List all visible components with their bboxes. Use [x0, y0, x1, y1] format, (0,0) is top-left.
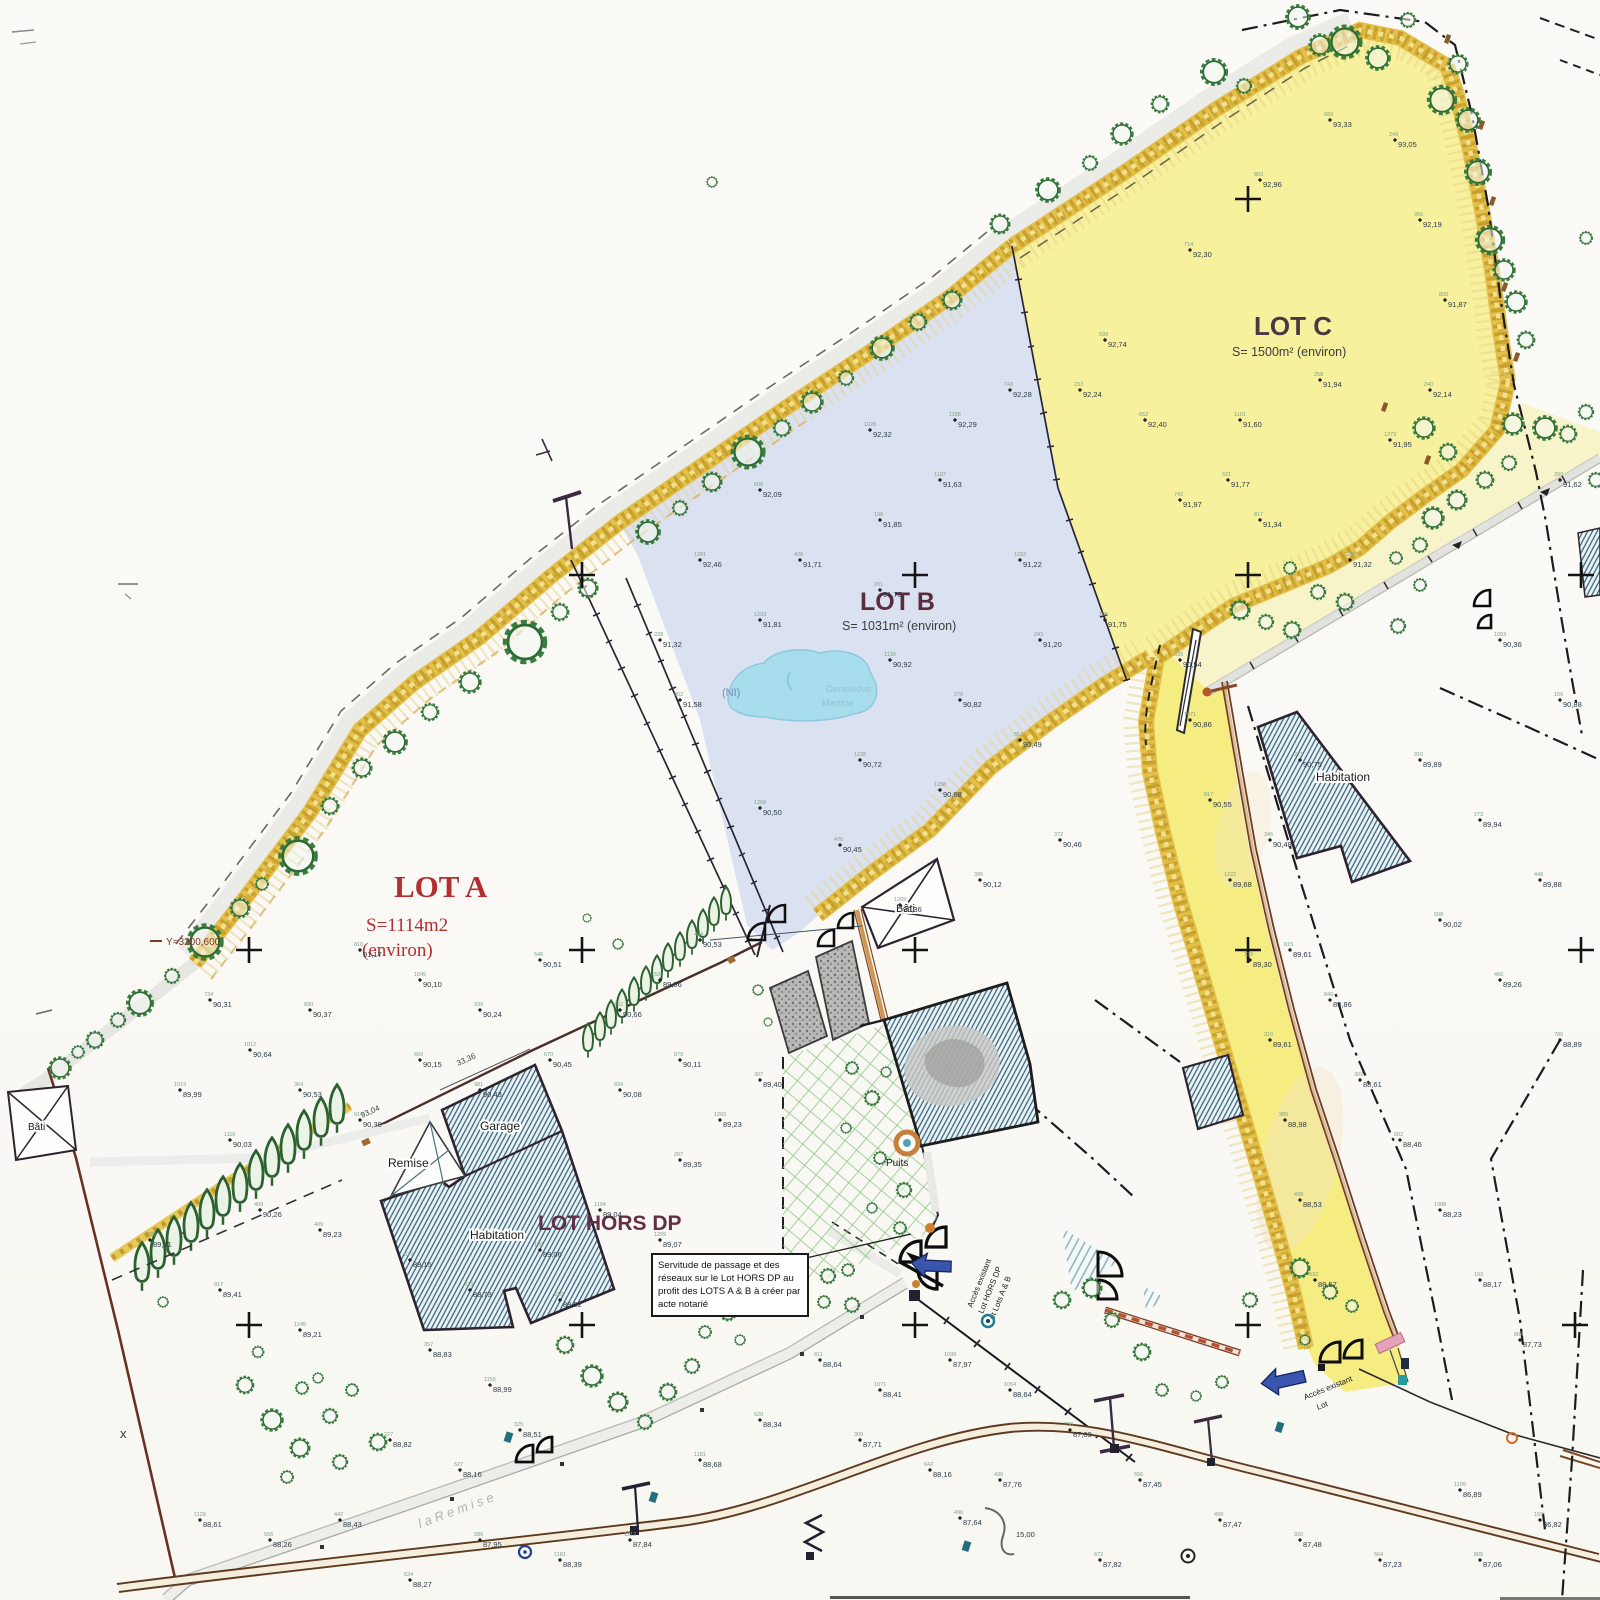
- svg-text:88,82: 88,82: [393, 1440, 412, 1449]
- svg-text:372: 372: [1054, 832, 1063, 838]
- svg-text:89,88: 89,88: [1543, 880, 1562, 889]
- svg-text:535: 535: [1174, 652, 1183, 658]
- svg-text:90,46: 90,46: [1063, 840, 1082, 849]
- svg-text:S= 1031m² (environ): S= 1031m² (environ): [842, 619, 956, 633]
- svg-text:339: 339: [474, 1002, 483, 1008]
- svg-text:227: 227: [384, 1432, 393, 1438]
- svg-text:1293: 1293: [1014, 552, 1026, 558]
- svg-text:90,15: 90,15: [423, 1060, 442, 1069]
- svg-text:108: 108: [534, 1242, 543, 1248]
- svg-text:89,68: 89,68: [1233, 880, 1252, 889]
- svg-text:90,45: 90,45: [843, 845, 862, 854]
- svg-text:1228: 1228: [854, 752, 866, 758]
- svg-text:525: 525: [654, 972, 663, 978]
- svg-text:1116: 1116: [224, 1132, 235, 1138]
- svg-text:90,86: 90,86: [1193, 720, 1212, 729]
- svg-text:465: 465: [1494, 972, 1503, 978]
- svg-text:réseaux sur le Lot HORS DP au: réseaux sur le Lot HORS DP au: [658, 1273, 794, 1284]
- svg-text:473: 473: [464, 1282, 473, 1288]
- svg-text:87,82: 87,82: [1103, 1560, 1122, 1569]
- svg-text:Servitude de passage et des: Servitude de passage et des: [658, 1260, 780, 1271]
- svg-text:90,36: 90,36: [903, 905, 922, 914]
- svg-text:325: 325: [514, 1422, 523, 1428]
- svg-text:652: 652: [1139, 412, 1148, 418]
- svg-text:634: 634: [404, 1572, 413, 1578]
- svg-text:88,41: 88,41: [883, 1390, 902, 1399]
- svg-text:88,64: 88,64: [1013, 1390, 1032, 1399]
- svg-text:88,61: 88,61: [1363, 1080, 1382, 1089]
- svg-text:Bâti: Bâti: [28, 1122, 45, 1133]
- svg-text:90,54: 90,54: [1183, 660, 1202, 669]
- svg-text:91,60: 91,60: [1243, 420, 1262, 429]
- svg-text:956: 956: [1414, 212, 1423, 218]
- svg-text:88,23: 88,23: [1443, 1210, 1462, 1219]
- svg-text:87,45: 87,45: [1143, 1480, 1162, 1489]
- svg-text:1099: 1099: [944, 1352, 956, 1358]
- svg-text:87,71: 87,71: [863, 1440, 882, 1449]
- svg-text:91,85: 91,85: [883, 520, 902, 529]
- svg-text:276: 276: [954, 692, 963, 698]
- svg-text:89,23: 89,23: [323, 1230, 342, 1239]
- svg-text:1212: 1212: [624, 1532, 636, 1538]
- svg-text:395: 395: [974, 872, 983, 878]
- svg-text:1269: 1269: [894, 897, 906, 903]
- svg-text:88,39: 88,39: [563, 1560, 582, 1569]
- svg-text:1222: 1222: [1224, 872, 1236, 878]
- svg-text:91,62: 91,62: [1563, 480, 1582, 489]
- svg-text:92,28: 92,28: [1013, 390, 1032, 399]
- svg-text:89,06: 89,06: [543, 1250, 562, 1259]
- svg-text:1028: 1028: [864, 422, 876, 428]
- svg-text:88,16: 88,16: [933, 1470, 952, 1479]
- svg-text:1101: 1101: [1234, 412, 1246, 418]
- svg-text:89,21: 89,21: [303, 1330, 322, 1339]
- svg-text:90,08: 90,08: [623, 1090, 642, 1099]
- svg-text:89,04: 89,04: [603, 1210, 622, 1219]
- svg-text:1129: 1129: [194, 1512, 206, 1518]
- svg-text:834: 834: [614, 1082, 623, 1088]
- svg-text:90,37: 90,37: [313, 1010, 332, 1019]
- svg-text:556: 556: [1134, 1472, 1143, 1478]
- svg-text:1054: 1054: [1004, 1382, 1016, 1388]
- svg-text:1012: 1012: [244, 1042, 256, 1048]
- svg-text:409: 409: [254, 1202, 263, 1208]
- svg-text:(NI): (NI): [722, 687, 740, 699]
- svg-text:734: 734: [204, 992, 213, 998]
- svg-text:1053: 1053: [1494, 632, 1506, 638]
- svg-text:90,82: 90,82: [963, 700, 982, 709]
- svg-text:804: 804: [1514, 1332, 1523, 1338]
- svg-text:90,43: 90,43: [483, 1090, 502, 1099]
- svg-text:15,00: 15,00: [1016, 1530, 1035, 1539]
- svg-text:159: 159: [1534, 1512, 1543, 1518]
- svg-text:1273: 1273: [1384, 432, 1396, 438]
- svg-text:409: 409: [314, 1222, 323, 1228]
- svg-text:404: 404: [694, 932, 703, 938]
- svg-text:210: 210: [554, 1292, 563, 1298]
- svg-text:273: 273: [1474, 812, 1483, 818]
- svg-text:89,07: 89,07: [663, 1240, 682, 1249]
- svg-text:profit des LOTS A & B à créer: profit des LOTS A & B à créer par: [658, 1286, 801, 1297]
- svg-text:309: 309: [854, 1432, 863, 1438]
- svg-text:90,55: 90,55: [1213, 800, 1232, 809]
- svg-text:92,40: 92,40: [1148, 420, 1167, 429]
- svg-text:91,63: 91,63: [943, 480, 962, 489]
- svg-text:689: 689: [1324, 112, 1333, 118]
- svg-text:1188: 1188: [949, 412, 961, 418]
- svg-text:917: 917: [214, 1282, 223, 1288]
- svg-text:1194: 1194: [594, 1202, 606, 1208]
- svg-text:557: 557: [1014, 732, 1023, 738]
- svg-text:90,50: 90,50: [763, 808, 782, 817]
- svg-text:198: 198: [874, 512, 883, 518]
- svg-text:87,06: 87,06: [1483, 1560, 1502, 1569]
- svg-text:92,96: 92,96: [1263, 180, 1282, 189]
- svg-text:92,29: 92,29: [958, 420, 977, 429]
- svg-text:364: 364: [294, 1082, 303, 1088]
- svg-text:89,52: 89,52: [563, 1300, 582, 1309]
- svg-text:89,86: 89,86: [663, 980, 682, 989]
- svg-text:90,92: 90,92: [893, 660, 912, 669]
- svg-text:129: 129: [1244, 952, 1253, 958]
- svg-text:90,11: 90,11: [683, 1060, 701, 1069]
- svg-text:780: 780: [1554, 1032, 1563, 1038]
- svg-text:1293: 1293: [754, 612, 766, 618]
- svg-text:89,41: 89,41: [223, 1290, 242, 1299]
- svg-text:800: 800: [1439, 292, 1448, 298]
- svg-text:92,46: 92,46: [703, 560, 722, 569]
- svg-text:Martine: Martine: [822, 698, 854, 709]
- svg-text:91,32: 91,32: [663, 640, 682, 649]
- svg-text:88,34: 88,34: [763, 1420, 782, 1429]
- svg-text:Habitation: Habitation: [470, 1228, 524, 1242]
- svg-text:S= 1500m² (environ): S= 1500m² (environ): [1232, 345, 1346, 359]
- svg-text:470: 470: [834, 837, 843, 843]
- svg-text:805: 805: [1474, 1552, 1483, 1558]
- svg-text:89,89: 89,89: [1423, 760, 1442, 769]
- svg-text:87,48: 87,48: [1303, 1540, 1322, 1549]
- svg-text:87,95: 87,95: [483, 1540, 502, 1549]
- svg-text:1181: 1181: [694, 1452, 706, 1458]
- svg-text:307: 307: [754, 1072, 763, 1078]
- svg-text:89,15: 89,15: [413, 1260, 432, 1269]
- svg-text:90,30: 90,30: [363, 1120, 382, 1129]
- svg-text:88,16: 88,16: [463, 1470, 482, 1479]
- svg-text:S=1114m2: S=1114m2: [366, 915, 448, 936]
- svg-text:92,32: 92,32: [873, 430, 892, 439]
- svg-text:1139: 1139: [884, 652, 896, 658]
- svg-text:90,72: 90,72: [863, 760, 882, 769]
- svg-text:811: 811: [814, 1352, 823, 1358]
- svg-text:156: 156: [1554, 692, 1563, 698]
- svg-text:90,02: 90,02: [1443, 920, 1462, 929]
- svg-text:86,82: 86,82: [1543, 1520, 1562, 1529]
- svg-text:817: 817: [1254, 512, 1263, 518]
- svg-text:738: 738: [1064, 1422, 1073, 1428]
- svg-text:90,48: 90,48: [1273, 840, 1292, 849]
- svg-text:508: 508: [1434, 912, 1443, 918]
- svg-text:408: 408: [794, 552, 803, 558]
- svg-text:273: 273: [1294, 752, 1303, 758]
- svg-text:LOT C: LOT C: [1254, 311, 1332, 341]
- svg-text:1258: 1258: [934, 782, 946, 788]
- svg-text:86,89: 86,89: [1463, 1490, 1482, 1499]
- svg-text:88,17: 88,17: [1483, 1280, 1502, 1289]
- svg-text:88,68: 88,68: [703, 1460, 722, 1469]
- svg-text:89,23: 89,23: [723, 1120, 742, 1129]
- svg-text:90,64: 90,64: [253, 1050, 272, 1059]
- svg-text:243: 243: [1034, 632, 1043, 638]
- svg-text:1109: 1109: [1454, 1482, 1466, 1488]
- svg-text:90,45: 90,45: [553, 1060, 572, 1069]
- svg-text:x: x: [120, 1426, 127, 1441]
- svg-text:90,12: 90,12: [983, 880, 1002, 889]
- svg-text:90,68: 90,68: [943, 790, 962, 799]
- svg-text:815: 815: [1284, 942, 1293, 948]
- svg-text:1181: 1181: [554, 1552, 566, 1558]
- svg-text:90,75: 90,75: [1303, 760, 1322, 769]
- svg-text:742: 742: [1174, 492, 1183, 498]
- svg-text:910: 910: [1414, 752, 1423, 758]
- svg-text:92,30: 92,30: [1193, 250, 1212, 259]
- svg-text:88,64: 88,64: [823, 1360, 842, 1369]
- svg-text:92,24: 92,24: [1083, 390, 1102, 399]
- svg-text:88,61: 88,61: [203, 1520, 222, 1529]
- svg-text:Remise: Remise: [388, 1156, 429, 1170]
- svg-text:89,40: 89,40: [763, 1080, 782, 1089]
- svg-text:810: 810: [354, 942, 363, 948]
- svg-text:91,32: 91,32: [1353, 560, 1372, 569]
- svg-text:90,36: 90,36: [1503, 640, 1522, 649]
- svg-text:92,74: 92,74: [1108, 340, 1127, 349]
- svg-text:89,30: 89,30: [1253, 960, 1272, 969]
- svg-text:1197: 1197: [934, 472, 946, 478]
- svg-text:1269: 1269: [754, 800, 766, 806]
- svg-text:90,49: 90,49: [1023, 740, 1042, 749]
- svg-text:93,33: 93,33: [1333, 120, 1352, 129]
- svg-text:520: 520: [754, 1412, 763, 1418]
- svg-text:743: 743: [1004, 382, 1013, 388]
- svg-text:Garage: Garage: [480, 1119, 520, 1133]
- svg-text:Y=3200,600: Y=3200,600: [166, 937, 221, 948]
- svg-text:Puits: Puits: [886, 1158, 908, 1169]
- svg-text:88,57: 88,57: [1318, 1280, 1337, 1289]
- svg-text:1071: 1071: [1184, 712, 1196, 718]
- svg-text:88,51: 88,51: [523, 1430, 542, 1439]
- svg-text:442: 442: [334, 1512, 343, 1518]
- svg-text:87,76: 87,76: [1003, 1480, 1022, 1489]
- svg-text:90,66: 90,66: [623, 1010, 642, 1019]
- svg-text:Habitation: Habitation: [1316, 770, 1370, 784]
- svg-text:90,53: 90,53: [703, 940, 722, 949]
- svg-text:88,27: 88,27: [413, 1580, 432, 1589]
- svg-text:862: 862: [674, 692, 683, 698]
- svg-text:1045: 1045: [414, 972, 426, 978]
- svg-text:88,26: 88,26: [273, 1540, 292, 1549]
- svg-text:92,09: 92,09: [763, 490, 782, 499]
- svg-text:502: 502: [1394, 1132, 1403, 1138]
- svg-text:89,61: 89,61: [1293, 950, 1312, 959]
- svg-text:88,89: 88,89: [1563, 1040, 1582, 1049]
- svg-text:91,17: 91,17: [363, 950, 382, 959]
- svg-text:1260: 1260: [714, 1112, 726, 1118]
- svg-text:1287: 1287: [1344, 552, 1356, 558]
- svg-text:608: 608: [754, 482, 763, 488]
- svg-text:88,83: 88,83: [433, 1350, 452, 1359]
- svg-text:87,84: 87,84: [633, 1540, 652, 1549]
- svg-text:88,53: 88,53: [1303, 1200, 1322, 1209]
- svg-text:496: 496: [954, 1510, 963, 1516]
- svg-text:90,10: 90,10: [423, 980, 442, 989]
- svg-text:201: 201: [874, 582, 883, 588]
- svg-text:90,24: 90,24: [483, 1010, 502, 1019]
- svg-text:91,94: 91,94: [1323, 380, 1342, 389]
- svg-text:1071: 1071: [874, 1382, 886, 1388]
- svg-text:1259: 1259: [654, 1232, 666, 1238]
- svg-text:90,31: 90,31: [213, 1000, 232, 1009]
- svg-text:87,73: 87,73: [1523, 1340, 1542, 1349]
- svg-text:88,99: 88,99: [493, 1385, 512, 1394]
- svg-text:91,71: 91,71: [803, 560, 822, 569]
- svg-text:89,35: 89,35: [683, 1160, 702, 1169]
- svg-text:90,03: 90,03: [233, 1140, 252, 1149]
- svg-text:1245: 1245: [294, 1322, 306, 1328]
- svg-text:91,95: 91,95: [1393, 440, 1412, 449]
- svg-text:309: 309: [1354, 1072, 1363, 1078]
- svg-text:448: 448: [1534, 872, 1543, 878]
- svg-text:Geneviève: Geneviève: [826, 684, 871, 695]
- svg-text:92,14: 92,14: [1433, 390, 1452, 399]
- svg-text:1155: 1155: [484, 1377, 496, 1383]
- svg-text:91,77: 91,77: [1231, 480, 1250, 489]
- svg-text:LOT A: LOT A: [394, 869, 488, 904]
- svg-text:286: 286: [474, 1532, 483, 1538]
- svg-text:152: 152: [614, 1002, 623, 1008]
- svg-text:532: 532: [1309, 1272, 1318, 1278]
- svg-text:240: 240: [1424, 382, 1433, 388]
- svg-text:521: 521: [1222, 472, 1231, 478]
- svg-text:91,81: 91,81: [763, 620, 782, 629]
- svg-text:89,86: 89,86: [1333, 1000, 1352, 1009]
- svg-text:914: 914: [354, 1112, 363, 1118]
- svg-text:258: 258: [1314, 372, 1323, 378]
- svg-text:103: 103: [1474, 1272, 1483, 1278]
- svg-text:1019: 1019: [174, 1082, 186, 1088]
- svg-text:207: 207: [674, 1152, 683, 1158]
- svg-text:599: 599: [1099, 332, 1108, 338]
- svg-text:670: 670: [544, 1052, 553, 1058]
- svg-text:87,64: 87,64: [963, 1518, 982, 1527]
- svg-text:91,87: 91,87: [1448, 300, 1467, 309]
- svg-text:87,89: 87,89: [1073, 1430, 1092, 1439]
- svg-text:87,47: 87,47: [1223, 1520, 1242, 1529]
- svg-text:89,26: 89,26: [1503, 980, 1522, 989]
- svg-text:714: 714: [1184, 242, 1193, 248]
- svg-text:564: 564: [1374, 1552, 1383, 1558]
- svg-text:669: 669: [414, 1052, 423, 1058]
- svg-text:233: 233: [1074, 382, 1083, 388]
- svg-text:920: 920: [1294, 1532, 1303, 1538]
- svg-text:556: 556: [264, 1532, 273, 1538]
- svg-text:546: 546: [534, 952, 543, 958]
- svg-text:672: 672: [1094, 1552, 1103, 1558]
- svg-text:228: 228: [654, 632, 663, 638]
- svg-text:90,51: 90,51: [543, 960, 562, 969]
- svg-text:981: 981: [474, 1082, 483, 1088]
- svg-text:1281: 1281: [694, 552, 706, 558]
- svg-text:91,20: 91,20: [1043, 640, 1062, 649]
- svg-text:91,22: 91,22: [1023, 560, 1042, 569]
- svg-text:385: 385: [1279, 1112, 1288, 1118]
- svg-text:88,73: 88,73: [473, 1290, 492, 1299]
- svg-text:357: 357: [424, 1342, 433, 1348]
- svg-text:195: 195: [1099, 612, 1108, 618]
- svg-text:1088: 1088: [1434, 1202, 1446, 1208]
- svg-text:642: 642: [924, 1462, 933, 1468]
- svg-text:92,19: 92,19: [1423, 220, 1442, 229]
- svg-text:88,46: 88,46: [1403, 1140, 1422, 1149]
- svg-text:88,43: 88,43: [343, 1520, 362, 1529]
- svg-text:498: 498: [1294, 1192, 1303, 1198]
- svg-text:890: 890: [304, 1002, 313, 1008]
- svg-text:527: 527: [454, 1462, 463, 1468]
- svg-text:87,97: 87,97: [953, 1360, 972, 1369]
- svg-text:803: 803: [1254, 172, 1263, 178]
- svg-text:430: 430: [994, 1472, 1003, 1478]
- svg-text:499: 499: [1214, 1512, 1223, 1518]
- svg-text:1086: 1086: [144, 1232, 156, 1238]
- svg-text:90,26: 90,26: [263, 1210, 282, 1219]
- svg-text:87,23: 87,23: [1383, 1560, 1402, 1569]
- svg-text:399: 399: [1554, 472, 1563, 478]
- svg-text:817: 817: [1204, 792, 1213, 798]
- svg-text:89,99: 89,99: [183, 1090, 202, 1099]
- svg-text:577: 577: [404, 1252, 413, 1258]
- svg-text:879: 879: [674, 1052, 683, 1058]
- svg-text:345: 345: [1264, 832, 1273, 838]
- svg-text:89,61: 89,61: [1273, 1040, 1292, 1049]
- svg-text:91,97: 91,97: [1183, 500, 1202, 509]
- svg-text:acte notarié: acte notarié: [658, 1299, 708, 1310]
- svg-text:249: 249: [1389, 132, 1398, 138]
- svg-text:91,75: 91,75: [1108, 620, 1127, 629]
- svg-text:90,88: 90,88: [1563, 700, 1582, 709]
- svg-text:89,71: 89,71: [153, 1240, 172, 1249]
- svg-text:89,94: 89,94: [1483, 820, 1502, 829]
- svg-text:846: 846: [1324, 992, 1333, 998]
- svg-text:91,75: 91,75: [883, 590, 902, 599]
- svg-text:90,53: 90,53: [303, 1090, 322, 1099]
- svg-text:91,34: 91,34: [1263, 520, 1282, 529]
- svg-text:310: 310: [1264, 1032, 1273, 1038]
- svg-text:91,58: 91,58: [683, 700, 702, 709]
- svg-text:88,98: 88,98: [1288, 1120, 1307, 1129]
- svg-text:93,05: 93,05: [1398, 140, 1417, 149]
